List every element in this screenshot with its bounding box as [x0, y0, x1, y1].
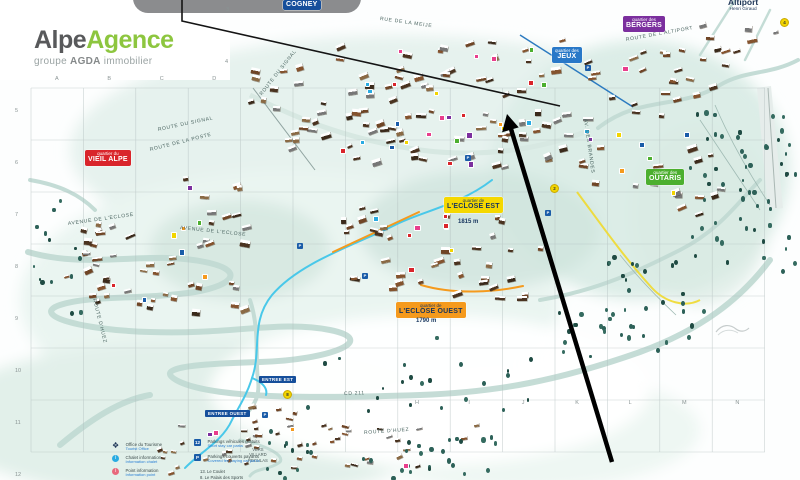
tree	[635, 263, 639, 268]
tree	[44, 231, 48, 236]
poi-marker	[443, 214, 448, 219]
altiport-label: Altiport Henri Giraud	[728, 0, 758, 12]
building	[348, 89, 358, 97]
poi-marker	[529, 47, 534, 52]
tree	[455, 437, 458, 441]
tree	[428, 378, 432, 383]
building	[124, 288, 131, 293]
building	[487, 40, 496, 45]
tree	[284, 444, 287, 448]
building	[248, 98, 255, 105]
building	[380, 225, 388, 231]
poi-marker	[474, 54, 479, 59]
tree	[780, 162, 783, 166]
building	[336, 56, 345, 61]
building	[83, 238, 91, 245]
tree	[739, 217, 742, 221]
building	[478, 279, 488, 285]
tree	[459, 439, 463, 444]
tree	[451, 463, 455, 468]
tree	[788, 143, 791, 147]
building	[192, 308, 200, 316]
tree	[605, 308, 608, 312]
building	[125, 232, 136, 240]
tree	[52, 208, 55, 212]
building	[522, 47, 529, 52]
tree	[682, 309, 686, 314]
tree	[738, 130, 741, 134]
grid-label: C	[160, 76, 164, 82]
building	[633, 182, 639, 187]
tree	[78, 256, 82, 261]
building	[254, 426, 258, 430]
tree	[785, 247, 788, 251]
building	[178, 423, 185, 427]
building	[353, 155, 360, 160]
tree	[482, 381, 486, 386]
district-badge-eclose-ouest: quartier deL'ECLOSE OUEST	[396, 302, 466, 318]
tree	[780, 128, 784, 133]
poi-marker	[671, 190, 677, 196]
poi-marker	[340, 148, 346, 154]
building	[486, 262, 492, 268]
building	[694, 210, 703, 216]
building	[597, 145, 604, 151]
building	[385, 434, 392, 439]
parking-badge: P	[545, 210, 551, 216]
grid-label: B	[107, 76, 111, 82]
tree	[74, 247, 77, 251]
building	[498, 148, 503, 153]
logo-tagline: groupe AGDA immobilier	[34, 56, 174, 67]
tree	[794, 172, 797, 176]
grid-label: H	[415, 400, 419, 406]
building	[175, 465, 180, 470]
building	[140, 268, 147, 273]
tree	[782, 115, 785, 119]
tree	[787, 235, 791, 240]
building	[669, 77, 676, 83]
building	[418, 156, 427, 162]
building	[507, 276, 516, 283]
building	[274, 430, 279, 435]
grid-label: 5	[15, 108, 18, 114]
poi-marker	[468, 161, 474, 167]
tree	[714, 167, 718, 172]
building	[501, 91, 509, 98]
tree	[409, 375, 413, 380]
tree	[681, 301, 685, 306]
street-label: CD 211	[344, 390, 365, 397]
building	[327, 427, 332, 431]
building	[639, 67, 647, 74]
poi-marker	[207, 432, 213, 438]
building	[708, 153, 714, 158]
building	[351, 276, 357, 281]
tree	[558, 311, 561, 315]
tree	[306, 405, 310, 410]
tree	[611, 312, 615, 317]
legend-item-point-information: i Point informationInformation point	[112, 468, 158, 480]
poi-marker	[616, 132, 622, 138]
building	[312, 118, 320, 126]
poi-marker	[454, 138, 460, 144]
tree	[756, 204, 760, 209]
tree	[463, 472, 466, 476]
tree	[771, 114, 775, 119]
numbered-marker: 4	[780, 18, 789, 27]
tree	[714, 221, 717, 225]
building	[490, 118, 496, 123]
building	[346, 429, 351, 432]
tree	[506, 373, 510, 378]
tree	[440, 406, 443, 410]
building	[687, 144, 698, 153]
building	[92, 256, 102, 261]
building	[411, 153, 418, 160]
tree	[625, 278, 628, 282]
building	[371, 158, 381, 167]
building	[418, 278, 425, 285]
grid-label: D	[212, 76, 216, 82]
building	[199, 193, 208, 199]
numbered-marker: 2	[550, 184, 559, 193]
building	[344, 463, 349, 468]
building	[342, 432, 349, 437]
poi-marker	[389, 145, 395, 151]
tree	[627, 288, 631, 293]
building	[336, 42, 347, 51]
building	[330, 439, 334, 443]
tree	[268, 441, 271, 445]
building	[334, 436, 339, 441]
poi-marker	[367, 89, 373, 95]
tree	[589, 355, 592, 359]
poi-marker	[398, 49, 403, 54]
tree	[79, 310, 82, 314]
building	[564, 133, 573, 137]
grid-label: M	[682, 400, 687, 406]
building	[168, 256, 175, 261]
parking-badge: P	[362, 273, 368, 279]
grid-label: 12	[15, 472, 21, 478]
tree	[767, 199, 770, 203]
poi-marker	[179, 249, 185, 255]
tree	[527, 398, 530, 402]
grid-label: A	[55, 76, 59, 82]
building	[232, 212, 242, 218]
tree	[563, 340, 567, 345]
building	[358, 206, 365, 212]
tree	[703, 198, 706, 202]
building	[97, 283, 106, 291]
building	[395, 437, 401, 442]
legend-venues-list: 13. Le Coulet 8. Le Palais des Sports 12…	[200, 469, 243, 480]
tree	[741, 196, 745, 201]
building	[722, 63, 730, 68]
tree	[608, 317, 611, 321]
tree	[743, 154, 747, 159]
building	[708, 83, 717, 91]
tree	[603, 329, 606, 333]
tree	[752, 190, 756, 195]
tree	[403, 363, 406, 367]
parking-badge: P	[262, 412, 268, 418]
building	[344, 230, 349, 234]
tree	[429, 447, 433, 452]
tree	[691, 235, 694, 239]
poi-marker	[187, 185, 193, 191]
tree	[391, 476, 395, 480]
tree	[464, 397, 468, 402]
building	[482, 112, 488, 117]
tree	[266, 467, 269, 471]
building	[367, 127, 377, 135]
poi-marker	[404, 140, 409, 145]
tree	[748, 190, 751, 194]
building	[396, 65, 405, 73]
building	[415, 463, 421, 469]
tree	[481, 437, 485, 442]
building	[453, 259, 460, 266]
tree	[567, 329, 571, 334]
tree	[745, 165, 748, 169]
building	[109, 223, 116, 229]
building	[640, 49, 647, 55]
tree	[681, 292, 685, 297]
tree	[502, 408, 505, 412]
district-badge-eclose-est: quartier deL'ECLOSE EST	[444, 197, 503, 213]
district-badge-vieil-alpe: quartier duVIEIL ALPE	[85, 150, 131, 166]
building	[550, 66, 560, 74]
poi-marker	[142, 297, 148, 303]
numbered-marker: 8	[283, 390, 292, 399]
poi-marker	[171, 232, 177, 238]
building	[285, 137, 292, 142]
tree	[624, 308, 627, 312]
poi-marker	[414, 225, 420, 231]
tree	[631, 262, 634, 266]
poi-marker	[466, 132, 472, 138]
building	[109, 254, 115, 258]
tree	[420, 381, 424, 386]
building	[495, 295, 505, 300]
grid-label: 3	[226, 7, 229, 13]
building	[273, 106, 280, 112]
tree	[486, 468, 490, 473]
tree	[70, 274, 73, 278]
tree	[690, 323, 694, 328]
tree	[50, 280, 53, 284]
tree	[632, 325, 635, 329]
tree	[48, 238, 51, 242]
tree	[33, 265, 36, 269]
building	[464, 40, 474, 47]
building	[317, 109, 327, 115]
building	[429, 108, 435, 113]
office-tourisme-icon: ❖	[112, 442, 119, 449]
building	[732, 48, 740, 54]
tree	[742, 179, 745, 183]
building	[290, 129, 299, 136]
poi-marker	[202, 274, 208, 280]
parking-badge: P	[465, 155, 471, 161]
building	[163, 449, 168, 453]
building	[439, 44, 448, 51]
tree	[338, 357, 341, 361]
building	[489, 284, 499, 292]
building	[89, 293, 96, 298]
tree	[715, 236, 719, 241]
building	[381, 257, 391, 264]
building	[592, 180, 600, 187]
building	[293, 80, 303, 86]
poi-marker	[622, 66, 628, 72]
building	[292, 410, 297, 416]
tree	[762, 256, 766, 261]
building	[402, 51, 412, 58]
building	[541, 121, 551, 128]
grid-label: 9	[15, 316, 18, 322]
poi-marker	[619, 168, 625, 174]
tree	[793, 261, 797, 266]
building	[443, 72, 450, 77]
building	[295, 63, 303, 71]
credit-emblem-icon	[712, 320, 752, 338]
tree	[417, 444, 420, 448]
tree	[674, 260, 678, 265]
building	[207, 210, 216, 215]
elevation-eclose-est: 1815 m	[458, 219, 478, 225]
building	[518, 132, 525, 138]
poi-marker	[360, 140, 365, 145]
building	[673, 67, 682, 73]
tree	[435, 336, 438, 340]
building	[152, 270, 158, 275]
building	[358, 72, 368, 81]
building	[286, 416, 293, 420]
building	[711, 191, 719, 199]
poi-marker	[365, 82, 370, 87]
building	[352, 109, 361, 116]
tree	[70, 311, 74, 316]
building	[506, 131, 514, 137]
building	[252, 418, 258, 423]
building	[578, 158, 585, 164]
building	[233, 284, 240, 290]
tree	[781, 269, 785, 274]
building	[320, 132, 331, 141]
building	[499, 217, 506, 224]
building	[686, 76, 694, 82]
building	[558, 38, 565, 43]
building	[151, 297, 155, 301]
building	[302, 117, 310, 123]
tree	[656, 348, 660, 353]
building	[63, 275, 68, 279]
building	[370, 208, 379, 214]
building	[526, 59, 532, 64]
building	[241, 429, 247, 432]
poi-marker	[111, 283, 116, 288]
tree	[753, 228, 756, 232]
building	[204, 240, 214, 248]
tree	[696, 112, 700, 117]
building	[346, 143, 353, 149]
tree	[428, 467, 431, 471]
grid-label: 6	[15, 160, 18, 166]
building	[242, 224, 252, 231]
elevation-eclose-ouest: 1790 m	[416, 318, 436, 324]
poi-marker	[290, 427, 295, 432]
building	[388, 96, 397, 105]
building	[535, 109, 541, 116]
building	[532, 127, 540, 133]
grid-label: I	[468, 400, 470, 406]
building	[231, 302, 239, 309]
building	[561, 112, 571, 118]
building	[146, 262, 154, 267]
parking-covered-icon: P	[194, 454, 201, 461]
parking-badge: P	[297, 243, 303, 249]
building	[166, 261, 173, 266]
poi-marker	[449, 248, 454, 253]
tree	[448, 438, 451, 442]
tree	[376, 396, 379, 400]
building	[700, 57, 706, 61]
building	[721, 48, 731, 54]
building	[404, 112, 411, 118]
building	[394, 278, 403, 287]
building	[312, 454, 318, 459]
building	[661, 91, 670, 95]
tree	[407, 440, 411, 445]
building	[171, 450, 176, 454]
building	[693, 91, 701, 98]
building	[237, 185, 243, 192]
building	[400, 81, 411, 90]
tree	[704, 110, 708, 115]
poi-marker	[647, 156, 652, 161]
tree	[748, 163, 752, 168]
building	[588, 75, 596, 80]
building	[357, 215, 367, 224]
poi-marker	[526, 120, 532, 126]
building	[341, 217, 347, 224]
tree	[762, 239, 766, 244]
building	[441, 247, 450, 254]
building	[415, 427, 421, 431]
poi-marker	[684, 132, 689, 137]
grid-label: 7	[15, 212, 18, 218]
building	[395, 453, 403, 460]
tree	[736, 135, 740, 140]
tree	[745, 226, 748, 230]
tree	[694, 254, 697, 258]
tree	[703, 173, 707, 178]
tree	[490, 435, 494, 440]
building	[81, 227, 88, 234]
logo-text-agence: Agence	[86, 26, 173, 54]
tree	[777, 138, 780, 142]
district-badge-jeux: quartier desJEUX	[552, 47, 582, 63]
building	[716, 187, 725, 192]
poi-marker	[439, 115, 445, 121]
building	[239, 304, 250, 314]
tree	[291, 448, 294, 452]
district-badge-outaris: quartier desOUTARIS	[646, 169, 684, 185]
agency-logo: AlpeAgence groupe AGDA immobilier	[34, 26, 174, 67]
